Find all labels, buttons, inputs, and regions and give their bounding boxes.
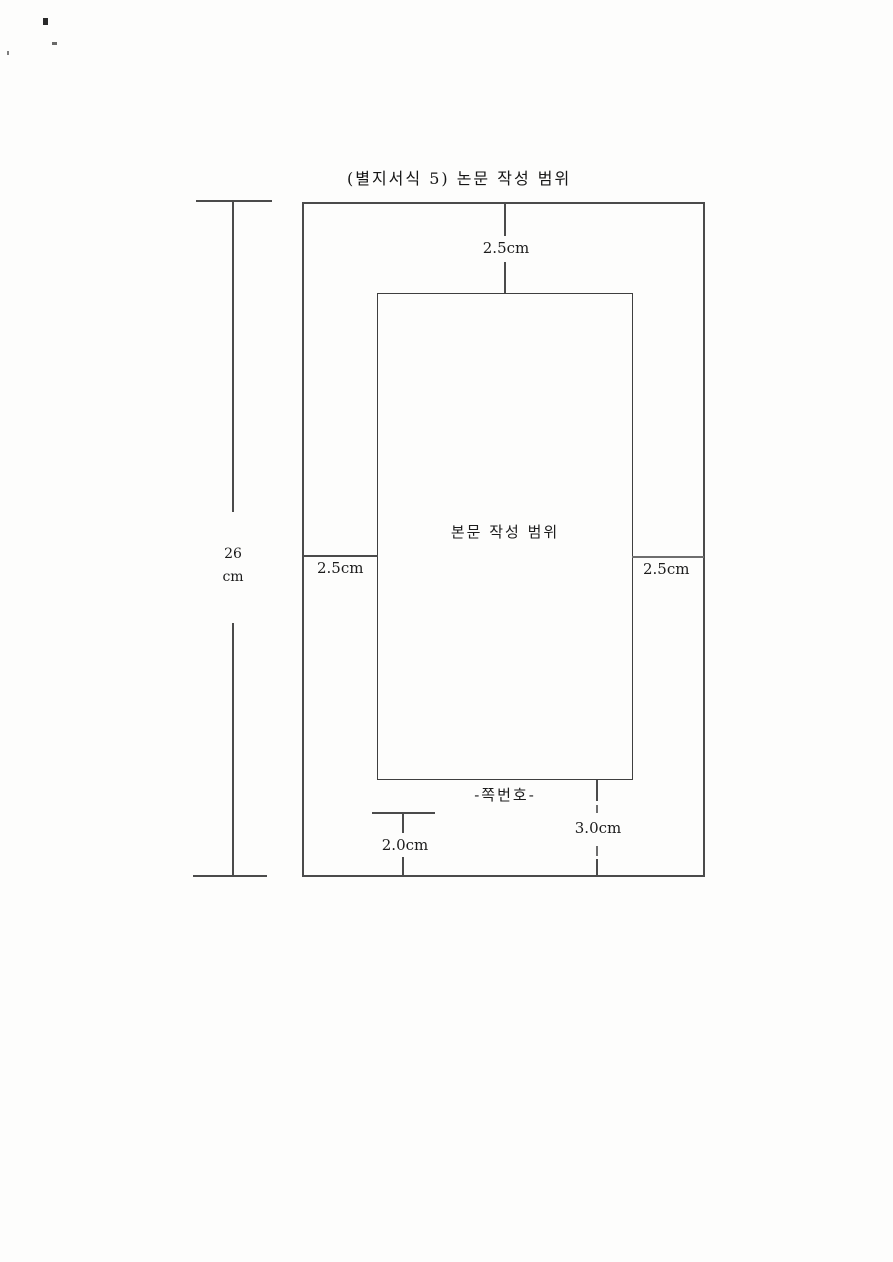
scan-speck [43, 18, 48, 25]
top-margin-dimension-line-lower [504, 262, 506, 293]
body-area-label: 본문 작성 범위 [451, 524, 559, 541]
scan-speck [52, 42, 57, 45]
page-height-dimension-line-lower [232, 623, 234, 877]
scan-speck [7, 51, 9, 55]
bottom-margin-dimension-line-upper [596, 780, 598, 801]
top-margin-value: 2.5cm [483, 240, 529, 257]
page-height-value: 26 [224, 546, 242, 562]
page-number-label: -쪽번호- [474, 787, 536, 804]
page-height-unit: cm [222, 569, 243, 585]
right-margin-dimension-line [632, 556, 704, 558]
page-height-top-tick [196, 200, 272, 202]
left-margin-dimension-line [303, 555, 378, 557]
page-number-offset-line-upper [402, 813, 404, 833]
bottom-margin-value: 3.0cm [575, 820, 621, 837]
top-margin-dimension-line-upper [504, 204, 506, 236]
bottom-margin-dimension-line-lower [596, 859, 598, 877]
page-title: (별지서식 5) 논문 작성 범위 [347, 165, 571, 189]
page-height-bottom-tick [193, 875, 267, 877]
bottom-margin-dimension-dash-lower [596, 846, 598, 856]
scanned-document-page: (별지서식 5) 논문 작성 범위 본문 작성 범위 2.5cm 26 cm 2… [0, 0, 893, 1262]
page-height-dimension-line-upper [232, 202, 234, 512]
page-number-offset-line-lower [402, 857, 404, 877]
bottom-margin-dimension-dash-upper [596, 805, 598, 813]
left-margin-value: 2.5cm [317, 560, 363, 577]
right-margin-value: 2.5cm [643, 561, 689, 578]
page-number-offset-value: 2.0cm [382, 837, 428, 854]
